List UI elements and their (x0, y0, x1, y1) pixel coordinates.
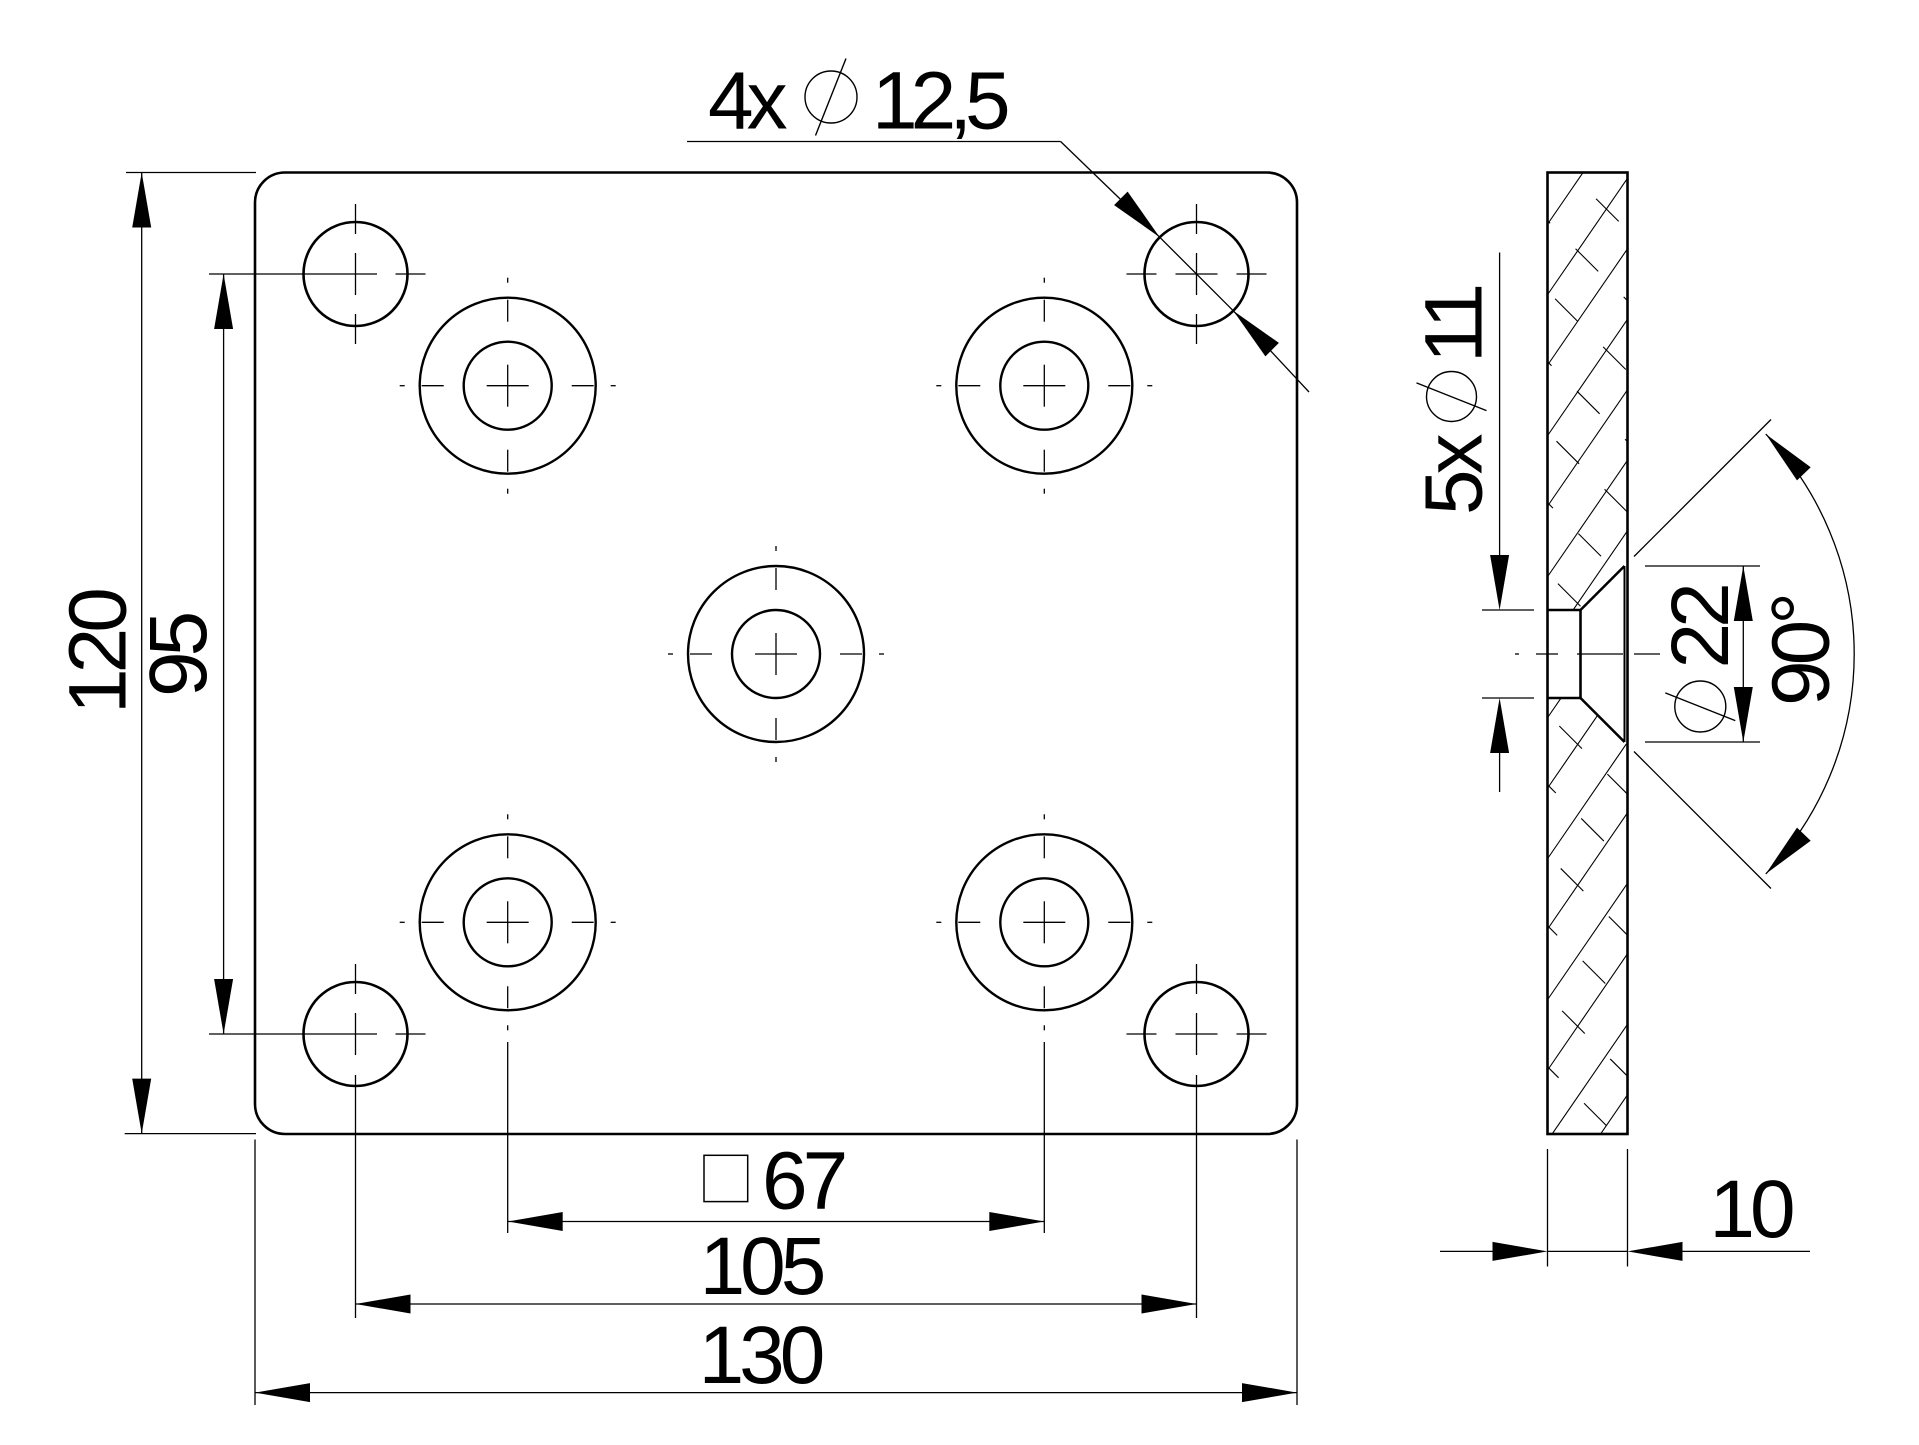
svg-text:95: 95 (133, 613, 224, 697)
svg-text:10: 10 (1709, 1164, 1793, 1255)
svg-text:130: 130 (699, 1310, 823, 1401)
svg-text:4x: 4x (708, 56, 788, 147)
svg-text:12,5: 12,5 (872, 56, 1008, 147)
svg-text:22: 22 (1655, 586, 1746, 669)
svg-text:11: 11 (1409, 286, 1500, 363)
svg-text:120: 120 (53, 590, 144, 714)
svg-text:105: 105 (700, 1221, 824, 1312)
svg-text:5x: 5x (1409, 433, 1500, 515)
svg-text:67: 67 (762, 1136, 845, 1227)
svg-text:90°: 90° (1756, 597, 1847, 706)
